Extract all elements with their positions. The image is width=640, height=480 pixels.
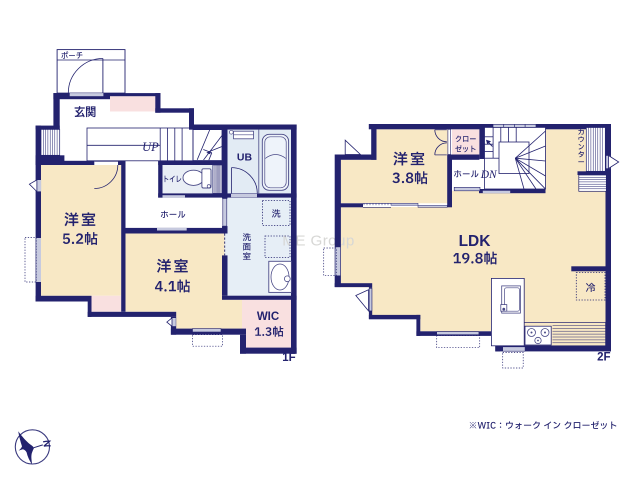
svg-text:1F: 1F (282, 352, 295, 364)
svg-text:UB: UB (237, 152, 253, 164)
svg-text:UP: UP (142, 140, 159, 154)
svg-text:DN: DN (480, 169, 498, 181)
svg-text:WIC: WIC (257, 311, 279, 323)
svg-text:2F: 2F (597, 352, 610, 364)
svg-text:LDK: LDK (459, 233, 492, 250)
